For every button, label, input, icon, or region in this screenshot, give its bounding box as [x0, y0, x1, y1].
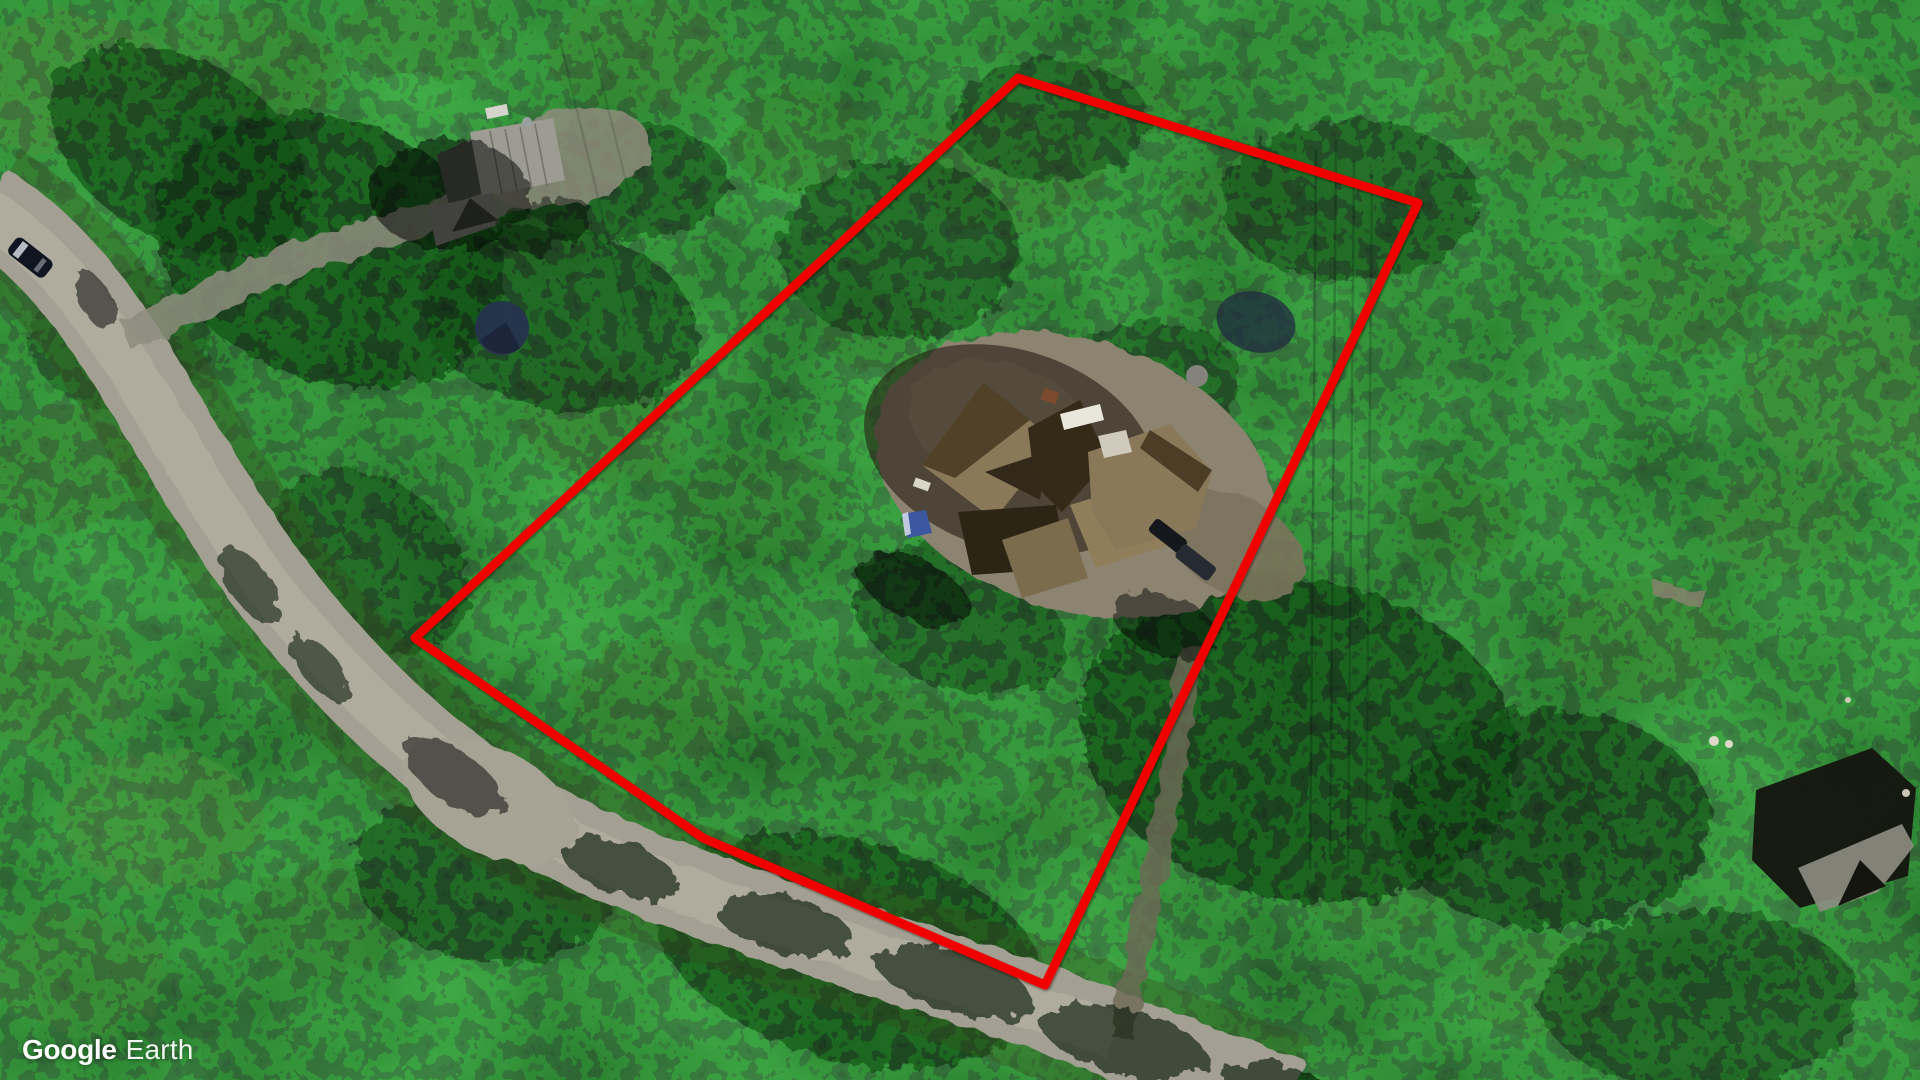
- google-earth-canvas[interactable]: GoogleEarth: [0, 0, 1920, 1080]
- gray-dome-object: [1186, 365, 1208, 387]
- watermark-brand: Google: [22, 1034, 117, 1065]
- watermark-product: Earth: [126, 1034, 194, 1065]
- satellite-imagery: [0, 0, 1920, 1080]
- watermark: GoogleEarth: [22, 1036, 194, 1064]
